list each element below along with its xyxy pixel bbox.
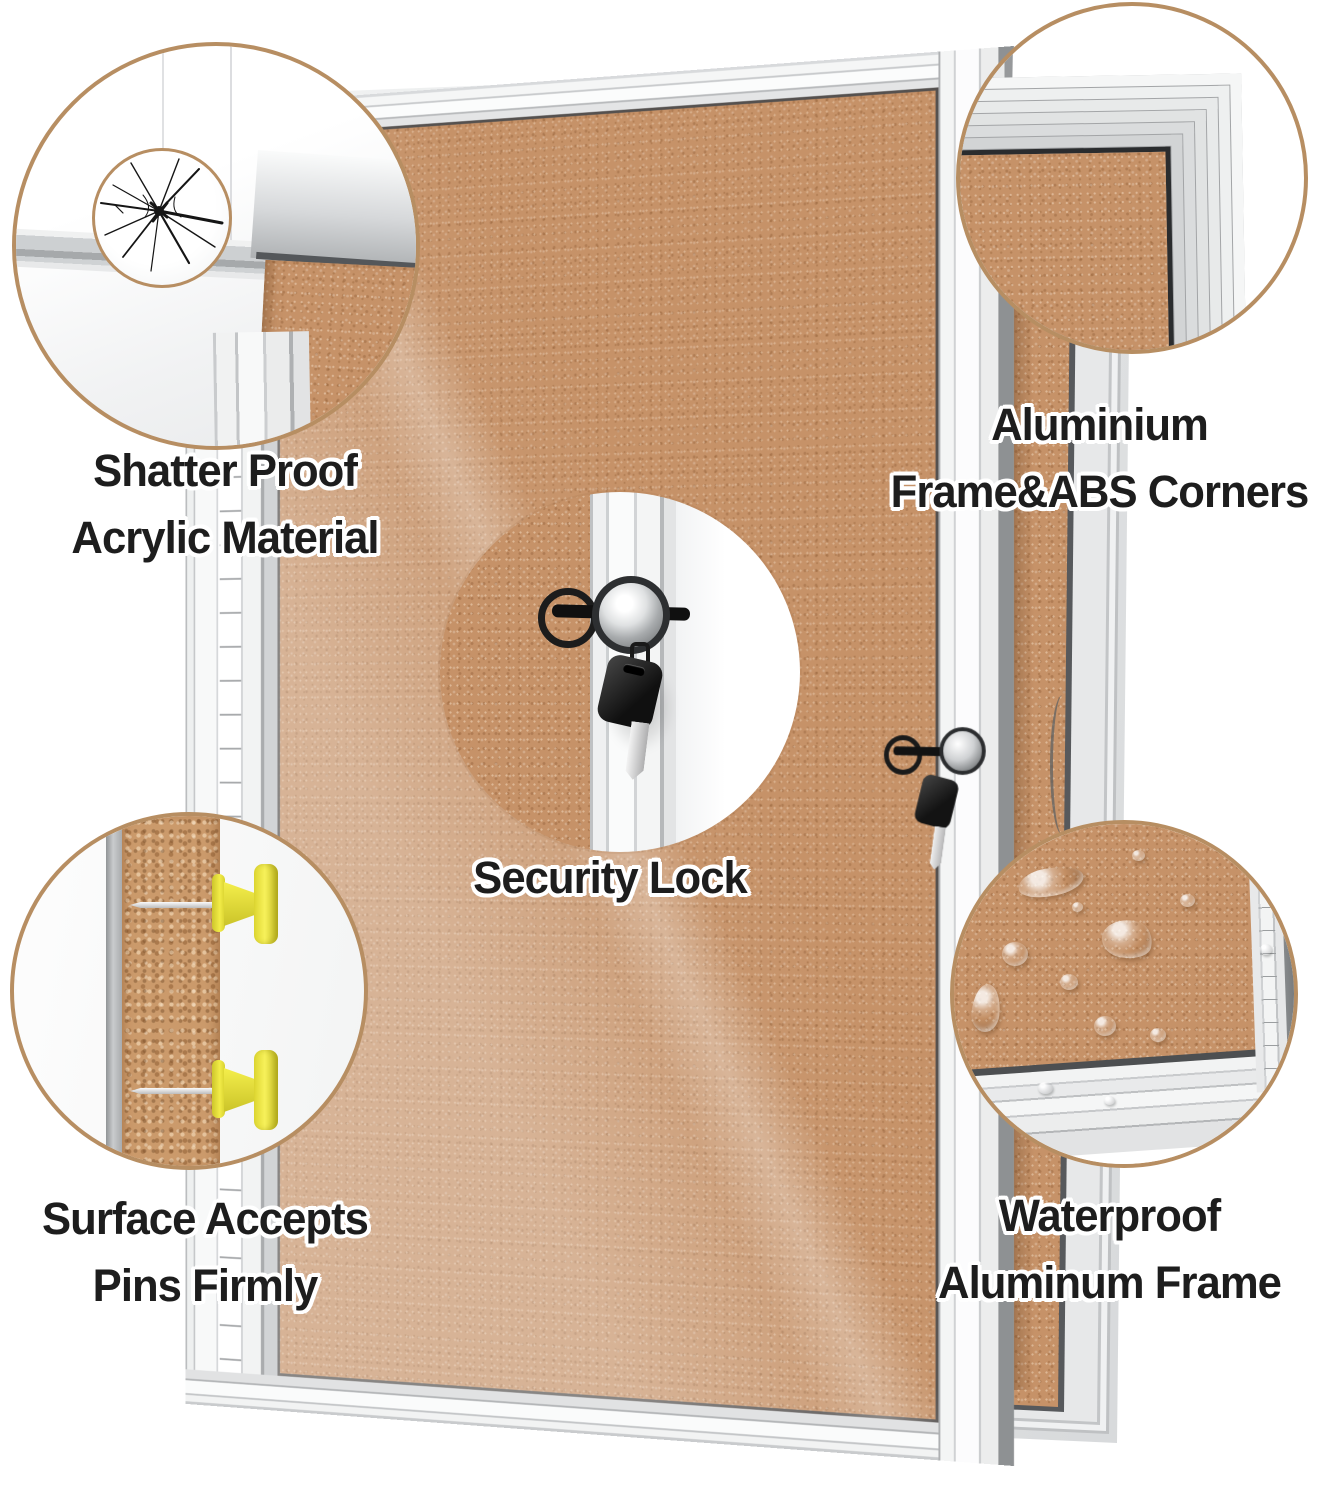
push-pin [212, 1048, 282, 1132]
callout-frame-corner [956, 2, 1308, 354]
magnified-rail-strips [213, 331, 311, 450]
key-fob-icon [913, 773, 960, 830]
callout-shatter-proof [12, 42, 420, 450]
pin-needle [130, 1088, 218, 1094]
key-blade-icon [929, 826, 946, 871]
water-droplet [1002, 942, 1028, 966]
door-handle-groove [1050, 695, 1075, 835]
shatter-crack-icon [95, 151, 229, 285]
pin-head [254, 1050, 278, 1130]
board-backing-strip [106, 816, 122, 1166]
frame-step [956, 134, 1187, 354]
label-aluminium-frame-line2: Frame&ABS Corners [885, 459, 1315, 526]
label-surface-pins: Surface Accepts Pins Firmly [1, 1186, 408, 1319]
label-security-lock-line1: Security Lock [431, 845, 790, 912]
water-droplet [1132, 850, 1145, 861]
water-droplet [1038, 1082, 1053, 1094]
magnified-cork [440, 492, 606, 852]
pin-neck [224, 882, 256, 926]
pin-head [254, 864, 278, 944]
lock-cylinder-icon [592, 576, 670, 654]
callout-waterproof [950, 820, 1298, 1168]
cork-cross-section [122, 816, 220, 1166]
product-feature-diagram: Shatter Proof Acrylic Material Aluminium… [0, 0, 1321, 1500]
label-waterproof-frame: Waterproof Aluminum Frame [904, 1183, 1314, 1316]
label-waterproof-frame-line1: Waterproof [904, 1183, 1314, 1250]
magnified-cork [950, 820, 1264, 1086]
frame-step [956, 110, 1211, 354]
magnified-cork [956, 152, 1170, 354]
label-shatter-proof-line1: Shatter Proof [12, 438, 439, 505]
water-droplet [1150, 1028, 1166, 1042]
label-waterproof-frame-line2: Aluminum Frame [904, 1250, 1314, 1317]
pin-neck [224, 1068, 256, 1112]
magnified-corner-steps [956, 73, 1247, 354]
water-droplet [1260, 944, 1272, 955]
water-droplet [1180, 894, 1195, 907]
label-surface-pins-line1: Surface Accepts [1, 1186, 408, 1253]
water-droplet [1060, 974, 1078, 990]
water-droplet [1094, 1016, 1116, 1036]
lock-cylinder-icon [939, 727, 985, 775]
label-security-lock: Security Lock [431, 845, 790, 912]
label-aluminium-frame-line1: Aluminium [885, 392, 1315, 459]
pin-flange [212, 1060, 225, 1118]
frame-gap-line [956, 147, 1175, 354]
label-surface-pins-line2: Pins Firmly [1, 1253, 408, 1320]
callout-pin-section [10, 812, 368, 1170]
frame-step [956, 122, 1199, 354]
frame-step [956, 98, 1223, 354]
shatter-crack-circle [92, 148, 232, 288]
pin-flange [212, 874, 225, 932]
pin-needle [130, 902, 218, 908]
label-shatter-proof: Shatter Proof Acrylic Material [12, 438, 439, 571]
frame-step [956, 86, 1235, 354]
label-shatter-proof-line2: Acrylic Material [12, 505, 439, 572]
water-droplet [1072, 902, 1083, 912]
callout-security-lock [440, 492, 800, 852]
label-aluminium-frame: Aluminium Frame&ABS Corners [885, 392, 1315, 525]
magnified-frame-corner [250, 150, 420, 270]
magnified-background [676, 492, 800, 852]
push-pin [212, 862, 282, 946]
frame-step [956, 73, 1247, 354]
water-droplet [1104, 1096, 1115, 1105]
